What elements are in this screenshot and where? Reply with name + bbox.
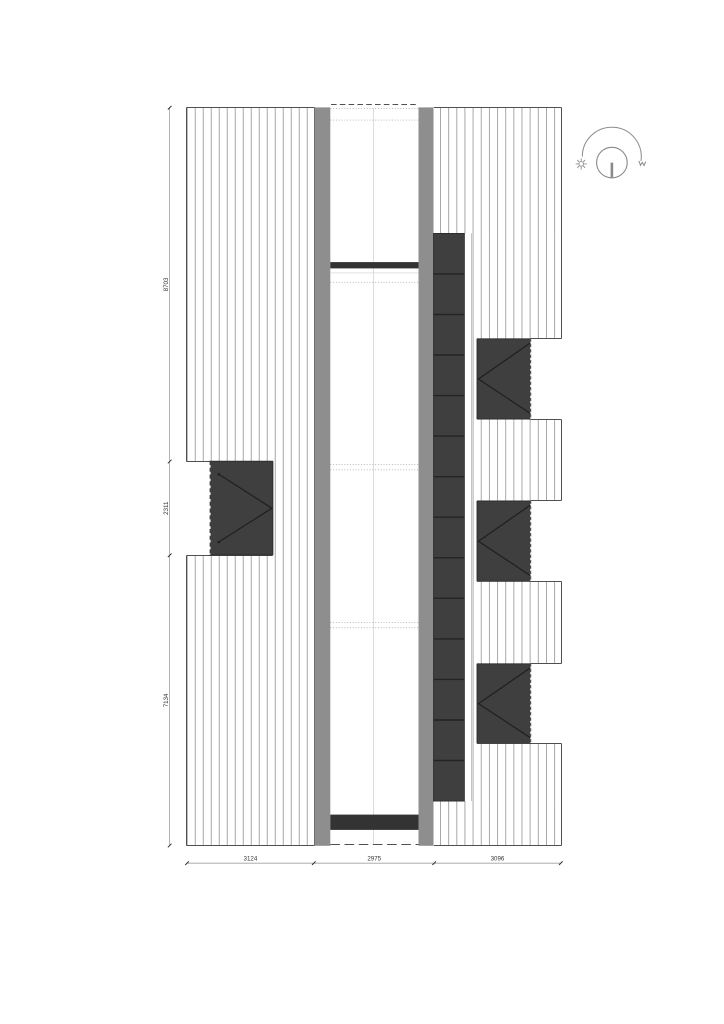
svg-text:7134: 7134 <box>163 693 170 707</box>
svg-text:2311: 2311 <box>163 501 170 515</box>
svg-text:8703: 8703 <box>163 277 170 291</box>
svg-text:3124: 3124 <box>244 856 258 863</box>
svg-text:2975: 2975 <box>367 856 381 863</box>
svg-text:3096: 3096 <box>491 856 505 863</box>
